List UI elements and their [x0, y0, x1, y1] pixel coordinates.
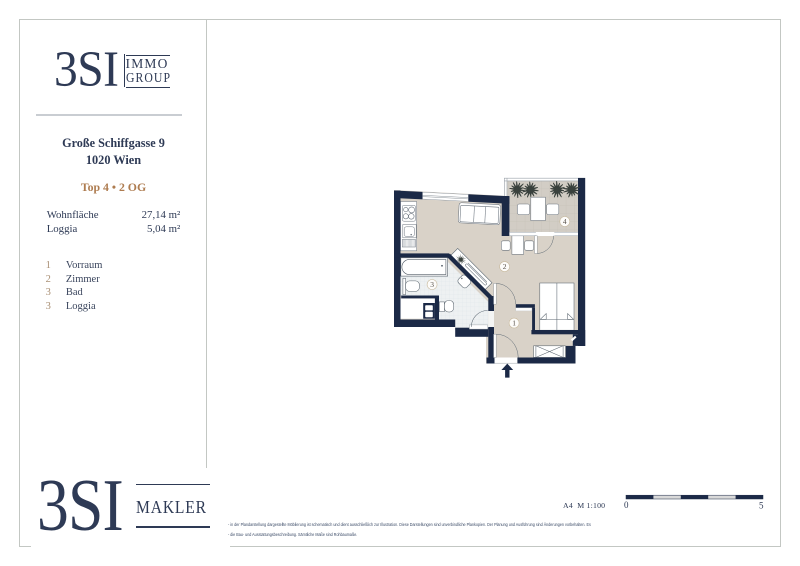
- svg-text:0: 0: [624, 500, 629, 510]
- svg-text:4: 4: [563, 217, 567, 226]
- svg-text:3: 3: [430, 280, 434, 289]
- svg-text:2: 2: [503, 262, 507, 271]
- svg-text:5: 5: [759, 501, 764, 511]
- svg-text:1: 1: [512, 319, 516, 328]
